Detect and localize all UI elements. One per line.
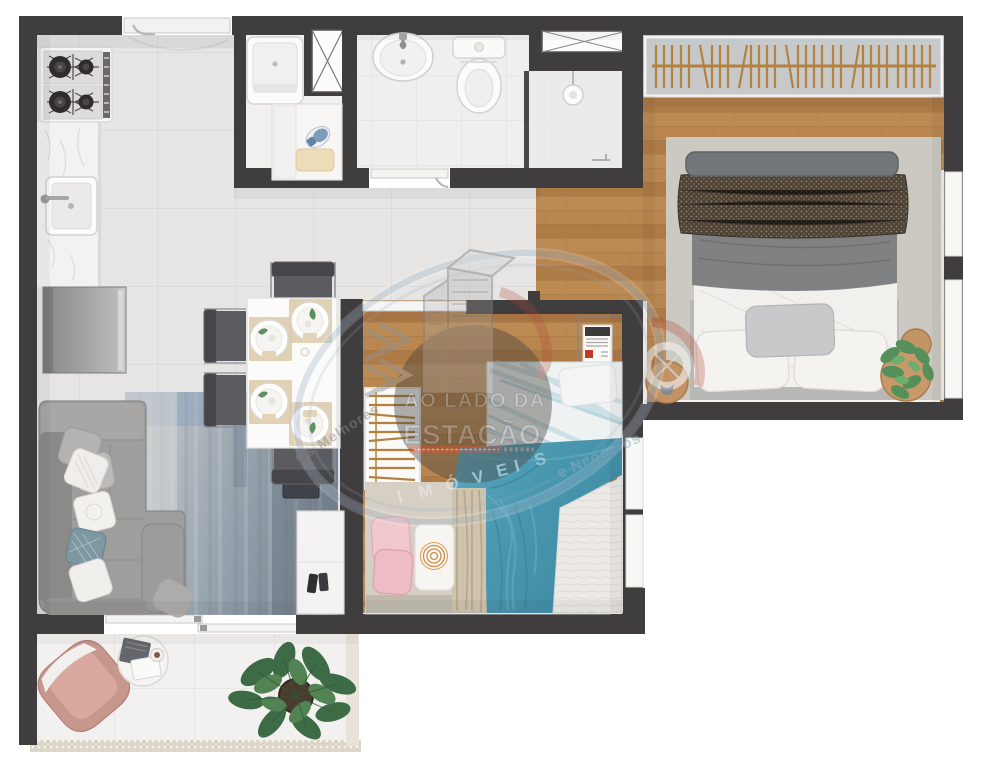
svg-text:ESTAÇÃO: ESTAÇÃO	[403, 419, 541, 450]
svg-text:AO LADO DA: AO LADO DA	[404, 390, 546, 412]
